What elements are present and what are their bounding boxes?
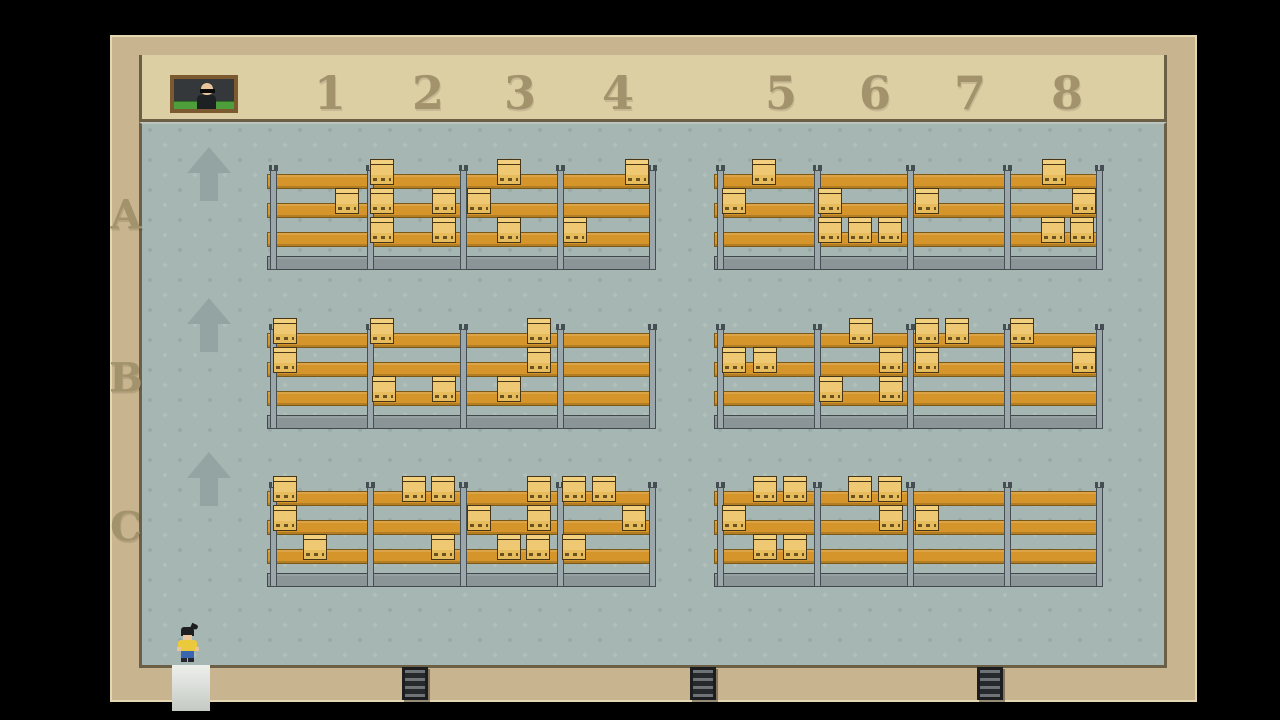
row-letter-C: C xyxy=(110,504,142,551)
crate[interactable] xyxy=(497,217,521,243)
shelf-post-cap xyxy=(1095,324,1104,330)
shelf-post xyxy=(270,170,277,270)
up-arrow-head xyxy=(187,298,231,324)
crate[interactable] xyxy=(370,188,394,214)
shelf-post xyxy=(717,170,724,270)
shelf-unit-C-left[interactable] xyxy=(267,491,656,587)
shelf-post-cap xyxy=(459,165,468,171)
crate[interactable] xyxy=(722,347,746,373)
crate[interactable] xyxy=(819,376,843,402)
shelf-post-cap xyxy=(459,324,468,330)
shelf-post-cap xyxy=(648,324,657,330)
player-pants xyxy=(181,651,194,658)
exit-doorway[interactable] xyxy=(172,665,210,711)
player-right-hand xyxy=(195,647,199,651)
crate[interactable] xyxy=(563,217,587,243)
crate[interactable] xyxy=(431,476,455,502)
shelf-post-cap xyxy=(716,482,725,488)
dock-door-2[interactable] xyxy=(690,667,716,700)
crate[interactable] xyxy=(915,188,939,214)
shelf-post xyxy=(1096,329,1103,429)
shelf-post xyxy=(270,329,277,429)
crate[interactable] xyxy=(526,534,550,560)
aisle-number-5: 5 xyxy=(765,66,797,120)
shelf-post-cap xyxy=(459,482,468,488)
shelf-post xyxy=(649,487,656,587)
shelf-unit-A-left[interactable] xyxy=(267,174,656,270)
crate[interactable] xyxy=(848,217,872,243)
crate[interactable] xyxy=(467,188,491,214)
crate[interactable] xyxy=(402,476,426,502)
crate[interactable] xyxy=(432,188,456,214)
portrait-suit xyxy=(197,95,216,109)
crate[interactable] xyxy=(625,159,649,185)
crate[interactable] xyxy=(879,376,903,402)
crate[interactable] xyxy=(273,476,297,502)
shelf-post xyxy=(270,487,277,587)
crate[interactable] xyxy=(1072,347,1096,373)
shelf-unit-B-right[interactable] xyxy=(714,333,1103,429)
up-arrow-icon xyxy=(187,298,231,352)
shelf-post xyxy=(460,487,467,587)
crate[interactable] xyxy=(622,505,646,531)
crate[interactable] xyxy=(370,217,394,243)
crate[interactable] xyxy=(848,476,872,502)
crate[interactable] xyxy=(273,505,297,531)
crate[interactable] xyxy=(753,347,777,373)
shelf-post xyxy=(460,329,467,429)
shelf-post-cap xyxy=(716,165,725,171)
manager-portrait xyxy=(170,75,238,113)
row-letter-B: B xyxy=(109,355,143,402)
crate[interactable] xyxy=(303,534,327,560)
shelf-post xyxy=(1096,487,1103,587)
crate[interactable] xyxy=(753,476,777,502)
crate[interactable] xyxy=(722,188,746,214)
crate[interactable] xyxy=(783,476,807,502)
crate[interactable] xyxy=(432,376,456,402)
up-arrow-head xyxy=(187,147,231,173)
shelf-unit-B-left[interactable] xyxy=(267,333,656,429)
shelf-post xyxy=(1004,487,1011,587)
shelf-post-cap xyxy=(906,324,915,330)
crate[interactable] xyxy=(915,318,939,344)
player-left-shoe xyxy=(181,658,187,662)
shelf-post xyxy=(367,487,374,587)
crate[interactable] xyxy=(783,534,807,560)
shelf-post xyxy=(649,329,656,429)
crate[interactable] xyxy=(849,318,873,344)
top-wall-header xyxy=(139,55,1167,122)
aisle-number-2: 2 xyxy=(412,66,444,120)
row-letter-A: A xyxy=(110,192,141,239)
shelf-post xyxy=(717,487,724,587)
shelf-post-cap xyxy=(1003,165,1012,171)
aisle-number-8: 8 xyxy=(1051,66,1083,120)
crate[interactable] xyxy=(432,217,456,243)
crate[interactable] xyxy=(335,188,359,214)
up-arrow-head xyxy=(187,452,231,478)
shelf-post xyxy=(1096,170,1103,270)
crate[interactable] xyxy=(1041,217,1065,243)
game-viewport: 12345678ABC xyxy=(0,0,1280,720)
dock-door-1[interactable] xyxy=(402,667,428,700)
shelf-post xyxy=(1004,170,1011,270)
crate[interactable] xyxy=(497,376,521,402)
crate[interactable] xyxy=(273,347,297,373)
crate[interactable] xyxy=(372,376,396,402)
shelf-post xyxy=(649,170,656,270)
shelf-post xyxy=(907,170,914,270)
up-arrow-stem xyxy=(200,324,218,352)
shelf-post xyxy=(814,487,821,587)
crate[interactable] xyxy=(562,534,586,560)
shelf-post-cap xyxy=(906,165,915,171)
up-arrow-stem xyxy=(200,478,218,506)
crate[interactable] xyxy=(818,188,842,214)
shelf-post-cap xyxy=(1003,482,1012,488)
up-arrow-icon xyxy=(187,147,231,201)
shelf-post-cap xyxy=(1095,165,1104,171)
crate[interactable] xyxy=(527,347,551,373)
dock-door-3[interactable] xyxy=(977,667,1003,700)
crate[interactable] xyxy=(945,318,969,344)
shelf-post-cap xyxy=(813,324,822,330)
crate[interactable] xyxy=(1072,188,1096,214)
shelf-post-cap xyxy=(556,324,565,330)
aisle-number-4: 4 xyxy=(602,66,634,120)
crate[interactable] xyxy=(497,534,521,560)
crate[interactable] xyxy=(527,476,551,502)
aisle-number-6: 6 xyxy=(859,66,891,120)
shelf-post-cap xyxy=(1095,482,1104,488)
crate[interactable] xyxy=(753,534,777,560)
shelf-post-cap xyxy=(648,482,657,488)
player-right-shoe xyxy=(188,658,194,662)
shelf-post-cap xyxy=(906,482,915,488)
crate[interactable] xyxy=(818,217,842,243)
up-arrow-icon xyxy=(187,452,231,506)
shelf-post xyxy=(907,329,914,429)
crate[interactable] xyxy=(1010,318,1034,344)
crate[interactable] xyxy=(527,318,551,344)
crate[interactable] xyxy=(527,505,551,531)
crate[interactable] xyxy=(915,347,939,373)
shelf-post-cap xyxy=(813,482,822,488)
crate[interactable] xyxy=(467,505,491,531)
shelf-post xyxy=(907,487,914,587)
shelf-unit-C-right[interactable] xyxy=(714,491,1103,587)
shelf-post-cap xyxy=(556,165,565,171)
crate[interactable] xyxy=(1070,217,1094,243)
shelf-post-cap xyxy=(716,324,725,330)
shelf-unit-A-right[interactable] xyxy=(714,174,1103,270)
crate[interactable] xyxy=(722,505,746,531)
crate[interactable] xyxy=(879,505,903,531)
aisle-number-1: 1 xyxy=(314,66,346,120)
aisle-number-3: 3 xyxy=(504,66,536,120)
crate[interactable] xyxy=(562,476,586,502)
crate[interactable] xyxy=(370,159,394,185)
player-character[interactable] xyxy=(177,627,199,662)
shelf-post-cap xyxy=(269,165,278,171)
shelf-post-cap xyxy=(648,165,657,171)
crate[interactable] xyxy=(879,347,903,373)
shelf-post xyxy=(557,329,564,429)
crate[interactable] xyxy=(431,534,455,560)
up-arrow-stem xyxy=(200,173,218,201)
aisle-number-7: 7 xyxy=(954,66,986,120)
crate[interactable] xyxy=(752,159,776,185)
shelf-post xyxy=(1004,329,1011,429)
crate[interactable] xyxy=(1042,159,1066,185)
crate[interactable] xyxy=(878,476,902,502)
crate[interactable] xyxy=(915,505,939,531)
shelf-post-cap xyxy=(813,165,822,171)
shelf-post-cap xyxy=(366,482,375,488)
shelf-post xyxy=(717,329,724,429)
shelf-post xyxy=(460,170,467,270)
crate[interactable] xyxy=(273,318,297,344)
crate[interactable] xyxy=(878,217,902,243)
crate[interactable] xyxy=(592,476,616,502)
crate[interactable] xyxy=(370,318,394,344)
crate[interactable] xyxy=(497,159,521,185)
portrait-glasses-icon xyxy=(200,89,215,93)
